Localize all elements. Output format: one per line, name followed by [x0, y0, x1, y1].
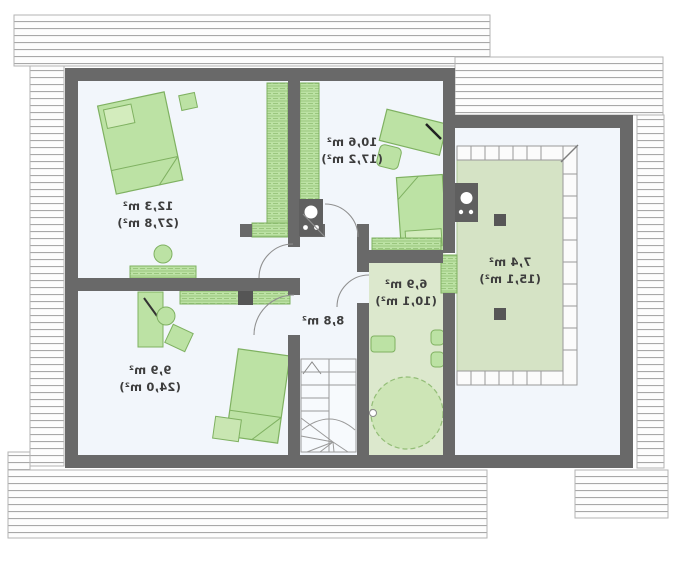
room-area: 7,4 m² — [479, 254, 541, 271]
room-area: 6,9 m² — [375, 276, 437, 293]
sideboard-icon — [180, 291, 290, 304]
wardrobe-icon — [252, 223, 288, 237]
room-label-bedroom: 12,3 m² (27,8 m²) — [117, 198, 179, 233]
chair-icon — [157, 307, 175, 325]
room-label-hall: 8,8 m² — [302, 312, 345, 329]
roof-hatch-bottom — [8, 470, 487, 538]
room-area-total: (17,2 m²) — [321, 151, 383, 168]
room-area: 12,3 m² — [117, 198, 179, 215]
cabinet-icon — [372, 238, 441, 250]
desk-icon — [130, 266, 196, 278]
roof-hatch-top — [14, 15, 490, 66]
column — [494, 308, 506, 320]
washbasin-icon — [371, 336, 395, 352]
room-area: 10,6 m² — [321, 134, 383, 151]
chimney-icon — [455, 183, 478, 222]
column — [494, 214, 506, 226]
stairs-icon — [301, 359, 356, 452]
room-area-total: (27,8 m²) — [117, 215, 179, 232]
roof-hatch-bottom-right — [575, 470, 668, 518]
nightstand-icon — [179, 92, 198, 110]
room-area-total: (24,0 m²) — [119, 379, 181, 396]
floor-plan-svg — [0, 0, 700, 576]
roof-hatch-left — [30, 66, 64, 466]
roof-hatch-right — [637, 115, 664, 468]
cabinet-icon — [441, 255, 457, 293]
bidet-icon — [431, 352, 444, 367]
wardrobe-icon — [300, 83, 319, 205]
room-label-study: 9,9 m² (24,0 m²) — [119, 362, 181, 397]
room-area-total: (15,1 m²) — [479, 271, 541, 288]
room-label-gallery: 7,4 m² (15,1 m²) — [479, 254, 541, 289]
roof-hatch-top-right — [455, 57, 663, 115]
tv-icon — [238, 289, 253, 305]
floor-plan-canvas: 12,3 m² (27,8 m²) 9,9 m² (24,0 m²) 10,6 … — [0, 0, 700, 576]
rug — [213, 416, 242, 441]
room-area-total: (10,1 m²) — [375, 293, 437, 310]
room-label-room-2: 10,6 m² (17,2 m²) — [321, 134, 383, 169]
wardrobe-icon — [267, 83, 288, 223]
toilet-icon — [431, 330, 444, 345]
room-area: 9,9 m² — [119, 362, 181, 379]
room-label-bathroom: 6,9 m² (10,1 m²) — [375, 276, 437, 311]
room-area: 8,8 m² — [302, 312, 345, 329]
chair-icon — [154, 245, 172, 263]
roof-hatch-step — [8, 452, 30, 470]
